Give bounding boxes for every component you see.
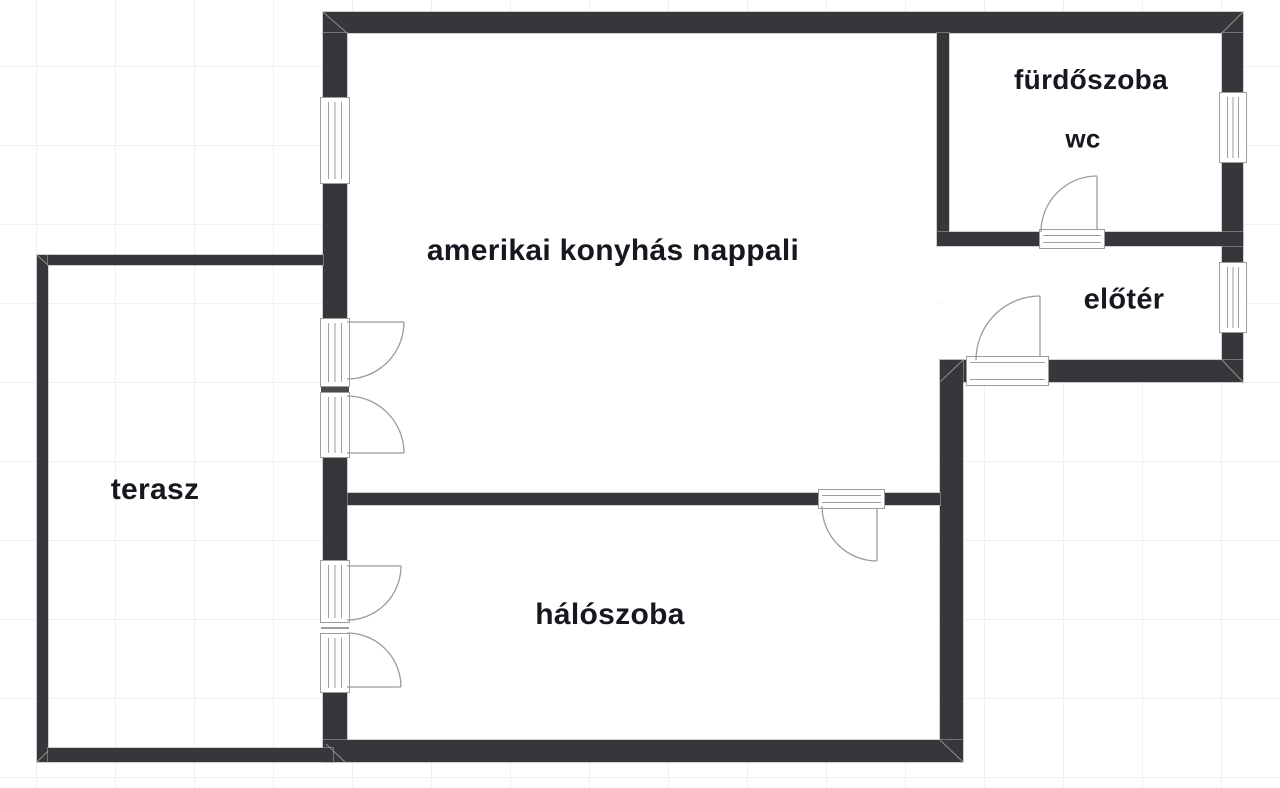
wall-miter-line [326,744,345,762]
door-arc [347,322,404,379]
room-label-terrace: terasz [111,473,200,507]
door-arc [976,296,1040,360]
wall-miter-line [1222,360,1243,382]
wall-miter-line [37,751,48,762]
wall-miter-line [1222,12,1243,33]
room-label-wc: wc [1065,124,1100,155]
room-label-bathroom: fürdőszoba [1014,64,1168,96]
door-swing-overlay [0,0,1280,788]
wall-miter-line [940,740,963,762]
wall-miter-line [323,12,347,33]
door-arc [347,566,401,620]
wall-miter-line [37,255,48,265]
door-arc [822,506,877,561]
floor-plan-canvas: amerikai konyhás nappali hálószoba teras… [0,0,1280,788]
room-label-bedroom: hálószoba [535,598,684,632]
door-arc [347,633,401,687]
door-arc [1041,176,1097,232]
wall-miter-line [940,360,963,382]
room-label-livingroom: amerikai konyhás nappali [427,234,799,268]
room-label-hall: előtér [1084,284,1165,317]
door-arc [347,396,404,453]
